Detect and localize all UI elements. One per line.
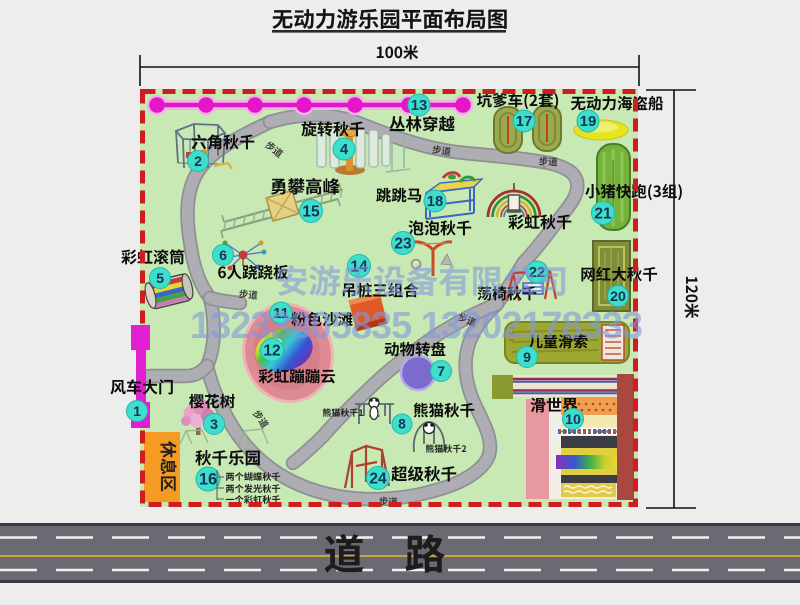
svg-text:8: 8: [398, 417, 406, 432]
svg-text:13233805835 13202178333: 13233805835 13202178333: [190, 305, 643, 347]
svg-text:3: 3: [210, 417, 218, 433]
svg-text:21: 21: [594, 205, 612, 222]
svg-text:18: 18: [427, 194, 444, 210]
svg-text:24: 24: [369, 470, 387, 487]
svg-text:19: 19: [580, 114, 597, 130]
svg-text:10: 10: [565, 412, 581, 428]
svg-text:13: 13: [411, 98, 428, 114]
svg-text:1: 1: [133, 404, 141, 420]
svg-text:7: 7: [437, 364, 445, 380]
svg-text:5: 5: [156, 271, 164, 287]
svg-text:17: 17: [516, 114, 533, 130]
svg-text:9: 9: [523, 350, 531, 366]
svg-text:23: 23: [394, 235, 412, 252]
svg-text:20: 20: [610, 289, 626, 305]
svg-text:2: 2: [194, 154, 202, 170]
svg-text:4: 4: [340, 142, 349, 158]
svg-text:6: 6: [219, 248, 227, 264]
svg-text:16: 16: [199, 471, 217, 489]
svg-text:15: 15: [302, 203, 320, 220]
